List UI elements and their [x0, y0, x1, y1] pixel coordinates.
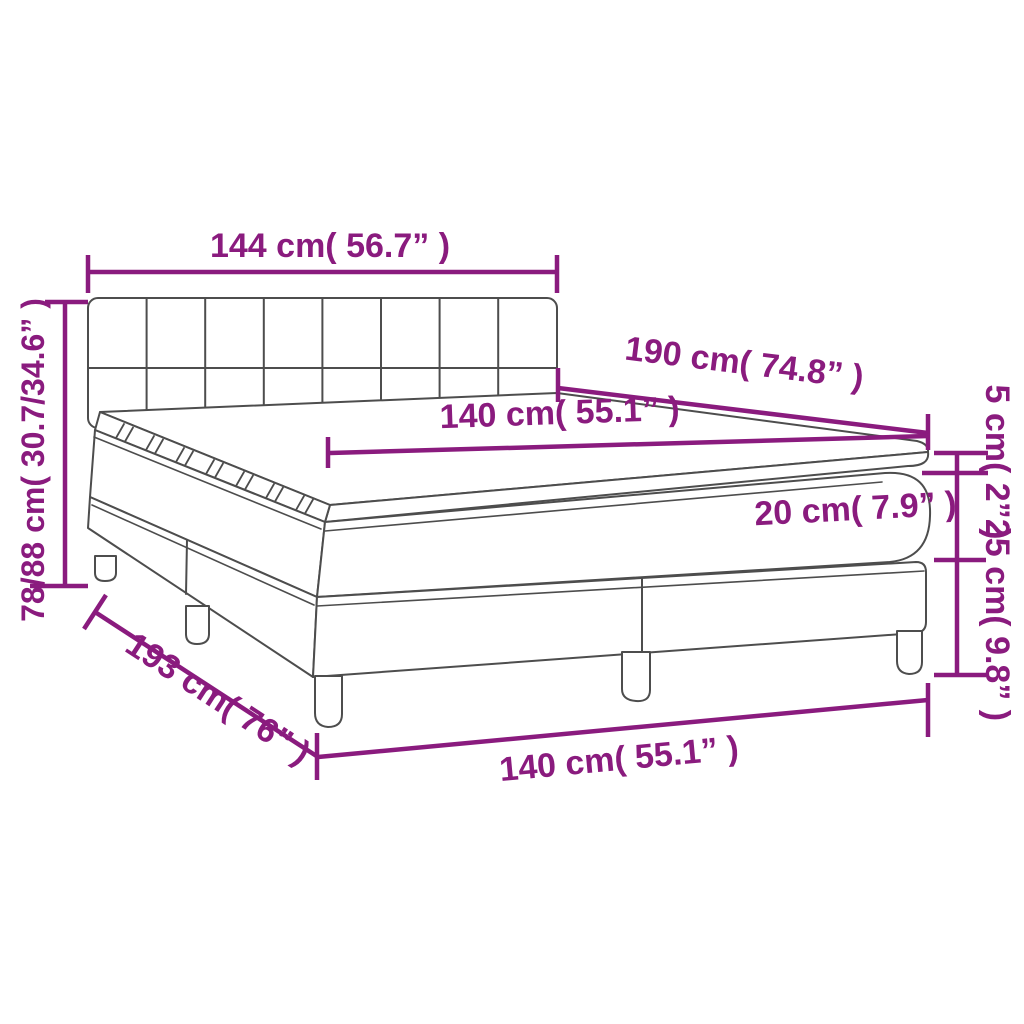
- bed-dimension-drawing: 144 cm( 56.7” ) 78/88 cm( 30.7/34.6” ) 1…: [0, 0, 1024, 1024]
- bed-leg-mid-left: [186, 606, 209, 644]
- topper-thickness-label: 5 cm( 2” ): [978, 385, 1016, 540]
- bed-leg-foot-left: [315, 676, 342, 727]
- bed-leg-foot-middle: [622, 652, 650, 701]
- overall-height-label: 78/88 cm( 30.7/34.6” ): [15, 298, 51, 622]
- bed-leg-foot-right: [897, 631, 922, 674]
- bed-leg-back-left: [95, 556, 116, 581]
- dimension-diagram: 144 cm( 56.7” ) 78/88 cm( 30.7/34.6” ) 1…: [0, 0, 1024, 1024]
- base-height-label: 25 cm( 9.8” ): [978, 519, 1016, 721]
- headboard-width-label: 144 cm( 56.7” ): [210, 227, 450, 265]
- mattress-length-label: 190 cm( 74.8” ): [623, 330, 866, 397]
